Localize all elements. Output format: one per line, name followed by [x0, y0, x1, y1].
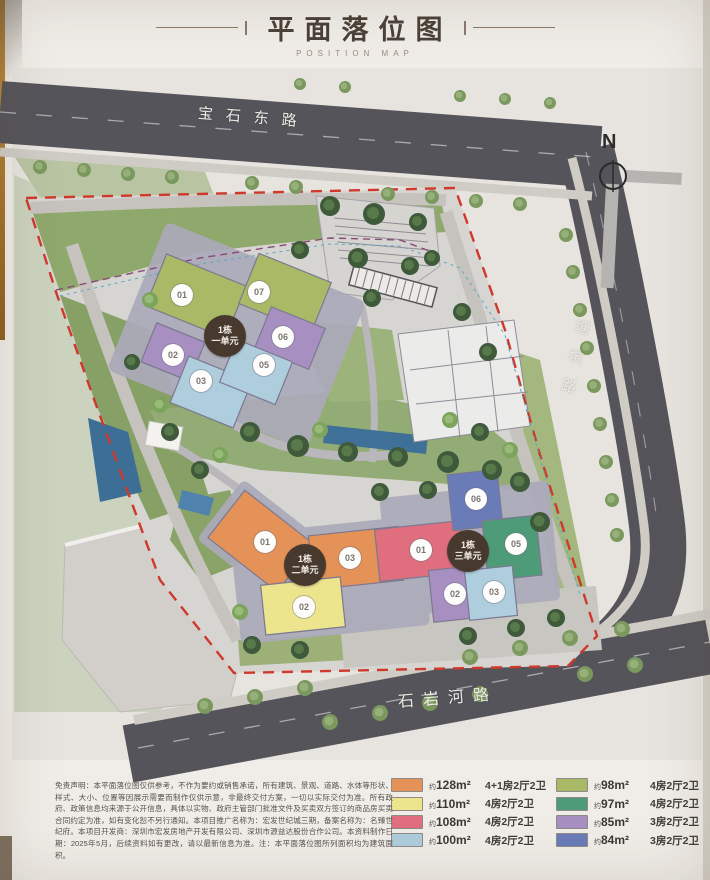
legend-swatch — [556, 815, 588, 829]
legend-column-left: 约128m² 4+1房2厅2卫 约110m² 4房2厅2卫 约108m² 4房2… — [391, 776, 546, 850]
legend-area-prefix: 约 — [429, 839, 436, 846]
cluster-badge-unit1: 1栋 一单元 — [204, 315, 246, 357]
legend-swatch — [556, 778, 588, 792]
cluster-badge-line1: 1栋 — [298, 554, 312, 565]
legend-area: 84m² — [601, 833, 629, 847]
legend-area-prefix: 约 — [594, 839, 601, 846]
legend-layout: 4房2厅2卫 — [485, 833, 534, 848]
unit-badge-3-05: 05 — [505, 533, 527, 555]
cluster-badge-unit3: 1栋 三单元 — [447, 530, 489, 572]
legend-layout: 3房2厅2卫 — [650, 814, 699, 829]
unit-badge-1-06: 06 — [272, 326, 294, 348]
disclaimer-text: 免责声明：本平面落位图仅供参考，不作为要约或销售承诺，所有建筑、景观、道路、水体… — [55, 780, 393, 861]
legend-area: 97m² — [601, 797, 629, 811]
cluster-badge-unit2: 1栋 二单元 — [284, 544, 326, 586]
unit-badge-1-03: 03 — [190, 370, 212, 392]
legend-area: 108m² — [436, 815, 471, 829]
legend-area-prefix: 约 — [594, 803, 601, 810]
legend-area: 128m² — [436, 778, 471, 792]
unit-badge-1-07: 07 — [248, 281, 270, 303]
legend-swatch — [391, 797, 423, 811]
legend-item: 约85m² 3房2厅2卫 — [556, 813, 699, 831]
legend-column-right: 约98m² 4房2厅2卫 约97m² 4房2厅2卫 约85m² 3房2厅2卫 约… — [556, 776, 699, 850]
legend-area-prefix: 约 — [429, 784, 436, 791]
legend-layout: 4房2厅2卫 — [485, 796, 534, 811]
unit-badge-1-05: 05 — [253, 354, 275, 376]
unit-badge-2-02: 02 — [293, 596, 315, 618]
legend-layout: 4房2厅2卫 — [650, 796, 699, 811]
unit-badge-2-01: 01 — [254, 531, 276, 553]
legend-area-prefix: 约 — [594, 784, 601, 791]
legend-item: 约97m² 4房2厅2卫 — [556, 794, 699, 812]
legend-item: 约128m² 4+1房2厅2卫 — [391, 776, 546, 794]
north-label: N — [602, 131, 616, 154]
unit-badge-3-01: 01 — [410, 539, 432, 561]
legend-swatch — [556, 833, 588, 847]
cluster-badge-line2: 三单元 — [454, 551, 481, 562]
legend-layout: 3房2厅2卫 — [650, 833, 699, 848]
legend-area: 100m² — [436, 833, 471, 847]
legend-area-prefix: 约 — [594, 821, 601, 828]
legend-item: 约84m² 3房2厅2卫 — [556, 831, 699, 849]
legend-item: 约110m² 4房2厅2卫 — [391, 794, 546, 812]
legend: 约128m² 4+1房2厅2卫 约110m² 4房2厅2卫 约108m² 4房2… — [391, 776, 703, 850]
legend-swatch — [391, 815, 423, 829]
legend-area: 85m² — [601, 815, 629, 829]
legend-item: 约108m² 4房2厅2卫 — [391, 813, 546, 831]
legend-area-prefix: 约 — [429, 803, 436, 810]
legend-area: 98m² — [601, 778, 629, 792]
legend-swatch — [391, 833, 423, 847]
cluster-badge-line1: 1栋 — [218, 325, 232, 336]
cluster-badge-line1: 1栋 — [461, 540, 475, 551]
legend-area: 110m² — [436, 797, 470, 811]
cluster-badge-line2: 一单元 — [211, 336, 238, 347]
commercial-block — [398, 320, 530, 442]
legend-layout: 4房2厅2卫 — [485, 814, 534, 829]
unit-badge-3-03: 03 — [483, 581, 505, 603]
unit-badge-3-02: 02 — [444, 583, 466, 605]
unit-badge-2-03: 03 — [339, 547, 361, 569]
legend-item: 约100m² 4房2厅2卫 — [391, 831, 546, 849]
unit-badge-1-01: 01 — [171, 284, 193, 306]
legend-area-prefix: 约 — [429, 821, 436, 828]
legend-swatch — [556, 797, 588, 811]
cluster-badge-line2: 二单元 — [291, 565, 318, 576]
legend-item: 约98m² 4房2厅2卫 — [556, 776, 699, 794]
legend-swatch — [391, 778, 423, 792]
legend-layout: 4房2厅2卫 — [650, 778, 699, 793]
unit-badge-1-02: 02 — [162, 344, 184, 366]
legend-layout: 4+1房2厅2卫 — [485, 778, 546, 793]
unit-badge-3-06: 06 — [465, 488, 487, 510]
